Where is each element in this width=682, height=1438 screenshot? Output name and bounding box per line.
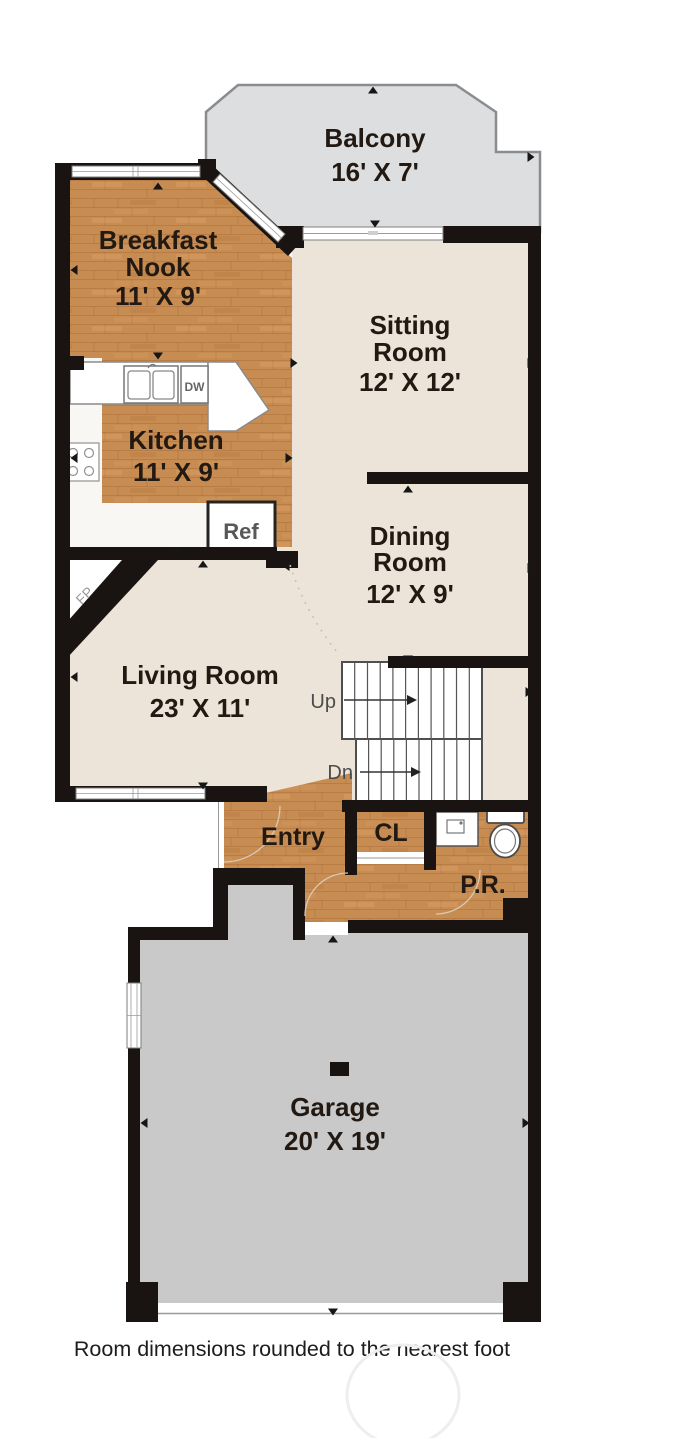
garage-post	[330, 1062, 349, 1076]
dishwasher-label: DW	[185, 380, 206, 394]
stairs-down-label: Dn	[327, 762, 353, 784]
refrigerator-label: Ref	[223, 519, 259, 544]
wall	[55, 356, 84, 370]
wall	[424, 800, 436, 870]
closet-label: CL	[374, 819, 407, 847]
garage-dims: 20' X 19'	[284, 1126, 386, 1156]
sliding-door-handle	[368, 231, 378, 235]
wall	[348, 920, 432, 933]
living-room-label: Living Room	[121, 660, 278, 690]
balcony-label: Balcony	[324, 123, 426, 153]
garage-label: Garage	[290, 1092, 380, 1122]
wall	[293, 868, 305, 940]
sitting-room-dims: 12' X 12'	[359, 367, 461, 397]
stairs-up-label: Up	[310, 691, 336, 713]
sink-drain-icon	[459, 821, 462, 824]
floor-plan-page: Balcony 16' X 7' Breakfast Nook 11' X 9'…	[0, 0, 682, 1438]
dining-room-label-line2: Room	[373, 547, 447, 577]
living-room-dims: 23' X 11'	[150, 693, 251, 723]
sitting-room-label-line2: Room	[373, 337, 447, 367]
kitchen-label: Kitchen	[128, 425, 223, 455]
wall	[55, 163, 70, 802]
balcony-dims: 16' X 7'	[331, 157, 419, 187]
wall	[213, 868, 228, 940]
wall	[126, 1282, 158, 1322]
staircase	[342, 662, 482, 803]
wall	[266, 551, 298, 568]
kitchen-dims: 11' X 9'	[133, 457, 219, 487]
wall	[528, 226, 541, 1308]
hall-floor	[345, 860, 436, 922]
powder-room-label: P.R.	[460, 871, 505, 899]
wall	[367, 472, 528, 484]
wall	[503, 1282, 541, 1322]
sink-basin-left	[128, 371, 150, 399]
floor-plan: Balcony 16' X 7' Breakfast Nook 11' X 9'…	[0, 0, 682, 1438]
exterior-gap	[40, 802, 215, 928]
footer-note: Room dimensions rounded to the nearest f…	[74, 1337, 510, 1361]
wall	[345, 800, 357, 875]
entry-label: Entry	[261, 823, 325, 851]
sitting-room-label-line1: Sitting	[370, 310, 451, 340]
wall	[443, 226, 541, 243]
garage-entry-door	[305, 922, 348, 935]
wall	[55, 547, 277, 560]
wall	[128, 927, 215, 940]
bathroom-sink	[436, 812, 478, 846]
sink-basin-right	[153, 371, 174, 399]
dining-room-dims: 12' X 9'	[366, 579, 454, 609]
kitchen-floor-2	[70, 503, 208, 548]
breakfast-nook-label-line2: Nook	[126, 252, 192, 282]
breakfast-nook-dims: 11' X 9'	[115, 281, 201, 311]
breakfast-nook-label-line1: Breakfast	[99, 225, 218, 255]
wall	[432, 920, 528, 933]
